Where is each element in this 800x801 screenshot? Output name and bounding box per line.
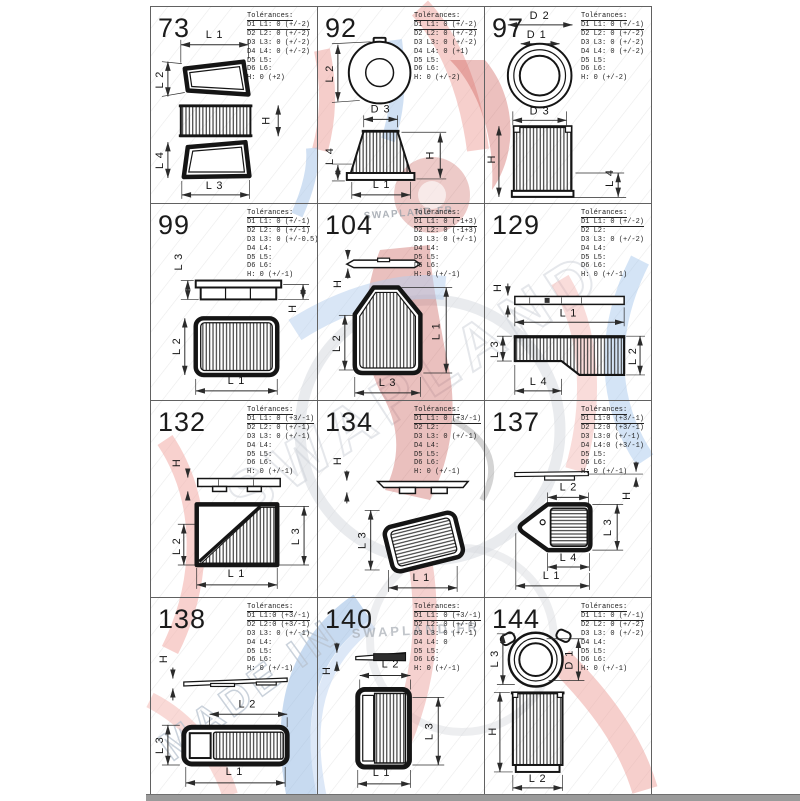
- tolerance-row: H: 0 (+/-1): [247, 468, 314, 477]
- tolerances-table: Tolérances: D1 L1: 0 (+3/-1) D2 L2: 0 (+…: [247, 406, 314, 477]
- tolerance-row: D3 L3: 0 (+/-2): [581, 630, 648, 639]
- tolerances-title: Tolérances:: [581, 12, 648, 21]
- dimension-label: H: [158, 654, 170, 663]
- tolerance-row: H: 0 (+/-1): [414, 665, 481, 674]
- dimension-label: L 3: [154, 736, 166, 754]
- cell-number: 99: [158, 210, 190, 241]
- tolerance-row: D3 L3: 0 (+/-1): [414, 236, 481, 245]
- dimension-label: L 1: [206, 29, 224, 41]
- tolerance-row: D1 L1: 0 (+/-1): [247, 218, 314, 227]
- dimension-label: H: [487, 727, 499, 736]
- tolerance-row: D1 L1: 0 (+/-2): [581, 218, 648, 227]
- tolerance-row: D3 L3: 0 (+/-2): [414, 39, 481, 48]
- tolerance-row: D3 L3: 0 (+/-1): [414, 630, 481, 639]
- tolerance-row: D6 L6:: [414, 65, 481, 74]
- tolerance-row: D5 L5:: [581, 57, 648, 66]
- dimension-label: L 3: [206, 180, 224, 192]
- tolerance-row: H: 0 (+/-1): [247, 665, 314, 674]
- tolerance-row: D4 L4:: [247, 442, 314, 451]
- dimension-label: H: [424, 151, 436, 160]
- cell-number: 104: [325, 210, 373, 241]
- dimension-label: H: [321, 666, 333, 675]
- tolerance-row: D2 L2: 0 (+/-1): [414, 621, 481, 630]
- tolerance-row: D1 L1: 0 (+/-2): [247, 21, 314, 30]
- tolerance-row: D3 L3: 0 (+/-0.5): [247, 236, 314, 245]
- tolerance-row: D6 L6:: [581, 262, 648, 271]
- tolerance-row: D5 L5:: [414, 648, 481, 657]
- catalog-page: { "watermark": { "texts": [ {"label": "S…: [0, 0, 800, 800]
- tolerance-row: D4 L4: 0 (+1): [414, 48, 481, 57]
- tolerance-row: D6 L6:: [414, 656, 481, 665]
- catalog-cell-137: 137 Tolérances: D1 L1:0 (+3/-1) D2 L2:0 …: [485, 401, 652, 598]
- tolerance-row: D6 L6:: [581, 656, 648, 665]
- tolerance-row: D1 L1:0 (+3/-1): [247, 612, 314, 621]
- tolerances-table: Tolérances: D1 L1:0 (+3/-1) D2 L2:0 (+3/…: [581, 406, 648, 477]
- tolerance-row: D2 L2:0 (+3/-1): [581, 424, 648, 433]
- dimension-label: H: [260, 116, 272, 125]
- dimension-label: L 2: [560, 481, 578, 493]
- tolerance-row: H: 0 (+/-1): [581, 665, 648, 674]
- dimension-label: D 1: [563, 650, 575, 670]
- tolerance-row: D1 L1: 0 (+/-1): [581, 612, 648, 621]
- tolerance-row: D3 L3: 0 (+/-1): [247, 630, 314, 639]
- tolerance-row: D5 L5:: [247, 254, 314, 263]
- tolerance-row: D2 L2: 0 (+/-2): [581, 621, 648, 630]
- dimension-label: L 2: [324, 65, 336, 83]
- tolerances-table: Tolérances: D1 L1: 0 (+3/-1) D2 L2: 0 (+…: [414, 603, 481, 674]
- tolerance-row: D2 L2:0 (+3/-1): [247, 621, 314, 630]
- tolerance-row: D2 L2: 0 (+/-2): [247, 30, 314, 39]
- dimension-label: D 1: [527, 29, 547, 41]
- tolerance-row: D6 L6:: [247, 459, 314, 468]
- tolerance-row: D2 L2:: [414, 424, 481, 433]
- tolerance-row: D5 L5:: [414, 254, 481, 263]
- tolerances-table: Tolérances: D1 L1: 0 (+/-1) D2 L2: 0 (+/…: [581, 603, 648, 674]
- tolerances-table: Tolérances: D1 L1: 0 (+/-2) D2 L2: D3 L3…: [581, 209, 648, 280]
- tolerance-row: D1 L1: 0 (+/-2): [414, 21, 481, 30]
- dimension-label: L 3: [423, 722, 435, 740]
- tolerance-row: D5 L5:: [247, 57, 314, 66]
- catalog-cell-134: 134 Tolérances: D1 L1: 0 (+3/-1) D2 L2: …: [318, 401, 485, 598]
- tolerance-row: H: 0 (+/-1): [581, 468, 648, 477]
- catalog-cell-73: 73 Tolérances: D1 L1: 0 (+/-2) D2 L2: 0 …: [151, 7, 318, 204]
- tolerance-row: D1 L1: 0 (+/-1): [581, 21, 648, 30]
- dimension-label: L 1: [412, 572, 430, 584]
- tolerances-title: Tolérances:: [581, 603, 648, 612]
- tolerances-title: Tolérances:: [414, 406, 481, 415]
- tolerances-title: Tolérances:: [581, 209, 648, 218]
- catalog-cell-97: 97 Tolérances: D1 L1: 0 (+/-1) D2 L2: 0 …: [485, 7, 652, 204]
- cell-number: 137: [492, 407, 540, 438]
- catalog-cell-140: 140 Tolérances: D1 L1: 0 (+3/-1) D2 L2: …: [318, 598, 485, 795]
- tolerance-row: D6 L6:: [247, 656, 314, 665]
- dimension-label: H: [486, 155, 498, 164]
- tolerance-row: H: 0 (+/-1): [414, 468, 481, 477]
- tolerance-row: H: 0 (+2): [247, 74, 314, 83]
- tolerances-title: Tolérances:: [247, 406, 314, 415]
- dimension-label: L 3: [379, 377, 397, 389]
- dimension-label: H: [171, 458, 183, 467]
- dimension-label: H: [492, 283, 504, 292]
- tolerance-row: D2 L2: 0 (+/-2): [414, 30, 481, 39]
- tolerances-title: Tolérances:: [247, 12, 314, 21]
- tolerance-row: H: 0 (+/-1): [581, 271, 648, 280]
- dimension-label: H: [332, 456, 344, 465]
- dimension-label: L 3: [602, 518, 614, 536]
- tolerances-title: Tolérances:: [247, 209, 314, 218]
- cell-number: 132: [158, 407, 206, 438]
- tolerance-row: D2 L2:: [581, 227, 648, 236]
- cell-number: 140: [325, 604, 373, 635]
- tolerance-row: D4 L4:0 (+3/-1): [581, 442, 648, 451]
- dimension-label: L 1: [228, 375, 246, 387]
- tolerance-row: D4 L4:: [247, 245, 314, 254]
- dimension-label: L 2: [331, 334, 343, 352]
- dimension-label: L 1: [430, 322, 442, 340]
- tolerance-row: D5 L5:: [247, 451, 314, 460]
- tolerances-title: Tolérances:: [581, 406, 648, 415]
- tolerance-row: D3 L3: 0 (+/-1): [247, 433, 314, 442]
- catalog-cell-99: 99 Tolérances: D1 L1: 0 (+/-1) D2 L2: 0 …: [151, 204, 318, 401]
- tolerances-table: Tolérances: D1 L1: 0 (-1+3) D2 L2: 0 (-1…: [414, 209, 481, 280]
- tolerance-row: D6 L6:: [414, 459, 481, 468]
- dimension-label: L 1: [543, 570, 561, 582]
- dimension-label: L 4: [154, 151, 166, 169]
- tolerance-row: D4 L4:: [581, 245, 648, 254]
- tolerances-table: Tolérances: D1 L1: 0 (+/-1) D2 L2: 0 (+/…: [581, 12, 648, 83]
- tolerance-row: H: 0 (+/-2): [581, 74, 648, 83]
- tolerances-table: Tolérances: D1 L1: 0 (+/-2) D2 L2: 0 (+/…: [414, 12, 481, 83]
- catalog-cell-144: 144 Tolérances: D1 L1: 0 (+/-1) D2 L2: 0…: [485, 598, 652, 795]
- tolerance-row: D4 L4: 0 (+/-2): [247, 48, 314, 57]
- cell-number: 97: [492, 13, 524, 44]
- dimension-label: L 1: [226, 766, 244, 778]
- tolerance-row: D3 L3:0 (+/-1): [581, 433, 648, 442]
- tolerance-row: H: 0 (+/-2): [414, 74, 481, 83]
- tolerance-row: D1 L1: 0 (+3/-1): [247, 415, 314, 424]
- catalog-cell-132: 132 Tolérances: D1 L1: 0 (+3/-1) D2 L2: …: [151, 401, 318, 598]
- tolerance-row: D6 L6:: [581, 65, 648, 74]
- catalog-grid: 73 Tolérances: D1 L1: 0 (+/-2) D2 L2: 0 …: [150, 6, 652, 795]
- cell-number: 92: [325, 13, 357, 44]
- dimension-label: L 4: [530, 376, 548, 388]
- dimension-label: D 2: [530, 10, 550, 22]
- dimension-label: L 2: [171, 337, 183, 355]
- dimension-label: H: [287, 304, 299, 313]
- dimension-label: L 3: [173, 253, 185, 271]
- tolerance-row: D6 L6:: [581, 459, 648, 468]
- tolerance-row: D5 L5:: [414, 57, 481, 66]
- tolerances-title: Tolérances:: [414, 603, 481, 612]
- dimension-label: L 3: [357, 531, 369, 549]
- tolerance-row: D5 L5:: [414, 451, 481, 460]
- tolerances-title: Tolérances:: [247, 603, 314, 612]
- dimension-label: L 1: [228, 568, 246, 580]
- tolerance-row: D6 L6:: [414, 262, 481, 271]
- dimension-label: L 3: [489, 650, 501, 668]
- tolerance-row: D2 L2: 0 (-1+3): [414, 227, 481, 236]
- tolerances-table: Tolérances: D1 L1: 0 (+/-1) D2 L2: 0 (+/…: [247, 209, 314, 280]
- dimension-label: L 2: [171, 537, 183, 555]
- catalog-cell-92: 92 Tolérances: D1 L1: 0 (+/-2) D2 L2: 0 …: [318, 7, 485, 204]
- dimension-label: L 1: [560, 307, 578, 319]
- tolerance-row: D4 L4:: [581, 639, 648, 648]
- tolerance-row: D2 L2: 0 (+/-1): [247, 227, 314, 236]
- dimension-label: H: [332, 279, 344, 288]
- tolerance-row: D1 L1: 0 (+3/-1): [414, 612, 481, 621]
- tolerance-row: H: 0 (+/-1): [247, 271, 314, 280]
- tolerance-row: D6 L6:: [247, 65, 314, 74]
- cell-number: 138: [158, 604, 206, 635]
- tolerance-row: D6 L6:: [247, 262, 314, 271]
- tolerance-row: D4 L4: 0: [414, 639, 481, 648]
- dimension-label: L 4: [324, 147, 336, 165]
- dimension-label: L 2: [154, 71, 166, 89]
- cell-number: 134: [325, 407, 373, 438]
- tolerance-row: D4 L4:: [414, 442, 481, 451]
- tolerance-row: D5 L5:: [581, 451, 648, 460]
- dimension-label: D 3: [530, 105, 550, 117]
- dimension-label: L 2: [239, 698, 257, 710]
- catalog-cell-129: 129 Tolérances: D1 L1: 0 (+/-2) D2 L2: D…: [485, 204, 652, 401]
- tolerance-row: D4 L4:: [414, 245, 481, 254]
- dimension-label: L 1: [373, 179, 391, 191]
- tolerance-row: D4 L4:: [247, 639, 314, 648]
- dimension-label: L 1: [373, 767, 391, 779]
- tolerance-row: D3 L3: 0 (+/-2): [581, 236, 648, 245]
- tolerance-row: D3 L3: 0 (+/-2): [581, 39, 648, 48]
- tolerance-row: D4 L4: 0 (+/-2): [581, 48, 648, 57]
- dimension-label: L 4: [604, 169, 616, 187]
- cell-number: 144: [492, 604, 540, 635]
- tolerances-table: Tolérances: D1 L1:0 (+3/-1) D2 L2:0 (+3/…: [247, 603, 314, 674]
- dimension-label: L 3: [489, 340, 501, 358]
- tolerance-row: D1 L1:0 (+3/-1): [581, 415, 648, 424]
- tolerance-row: D5 L5:: [247, 648, 314, 657]
- catalog-cell-138: 138 Tolérances: D1 L1:0 (+3/-1) D2 L2:0 …: [151, 598, 318, 795]
- cell-number: 73: [158, 13, 190, 44]
- tolerances-title: Tolérances:: [414, 209, 481, 218]
- tolerance-row: D1 L1: 0 (+3/-1): [414, 415, 481, 424]
- dimension-label: L 3: [290, 527, 302, 545]
- tolerance-row: D5 L5:: [581, 648, 648, 657]
- tolerance-row: D3 L3: 0 (+/-1): [414, 433, 481, 442]
- dimension-label: H: [621, 491, 633, 500]
- tolerance-row: D2 L2: 0 (+/-1): [247, 424, 314, 433]
- dimension-label: L 2: [529, 773, 547, 785]
- tolerance-row: D2 L2: 0 (+/-2): [581, 30, 648, 39]
- dimension-label: D 3: [371, 103, 391, 115]
- catalog-cell-104: 104 Tolérances: D1 L1: 0 (-1+3) D2 L2: 0…: [318, 204, 485, 401]
- tolerance-row: D1 L1: 0 (-1+3): [414, 218, 481, 227]
- dimension-label: L 2: [627, 347, 639, 365]
- tolerance-row: D3 L3: 0 (+/-2): [247, 39, 314, 48]
- tolerances-table: Tolérances: D1 L1: 0 (+3/-1) D2 L2: D3 L…: [414, 406, 481, 477]
- tolerances-table: Tolérances: D1 L1: 0 (+/-2) D2 L2: 0 (+/…: [247, 12, 314, 83]
- tolerance-row: H: 0 (+/-1): [414, 271, 481, 280]
- dimension-label: L 4: [560, 552, 578, 564]
- dimension-label: L 2: [382, 659, 400, 671]
- tolerance-row: D5 L5:: [581, 254, 648, 263]
- cell-number: 129: [492, 210, 540, 241]
- tolerances-title: Tolérances:: [414, 12, 481, 21]
